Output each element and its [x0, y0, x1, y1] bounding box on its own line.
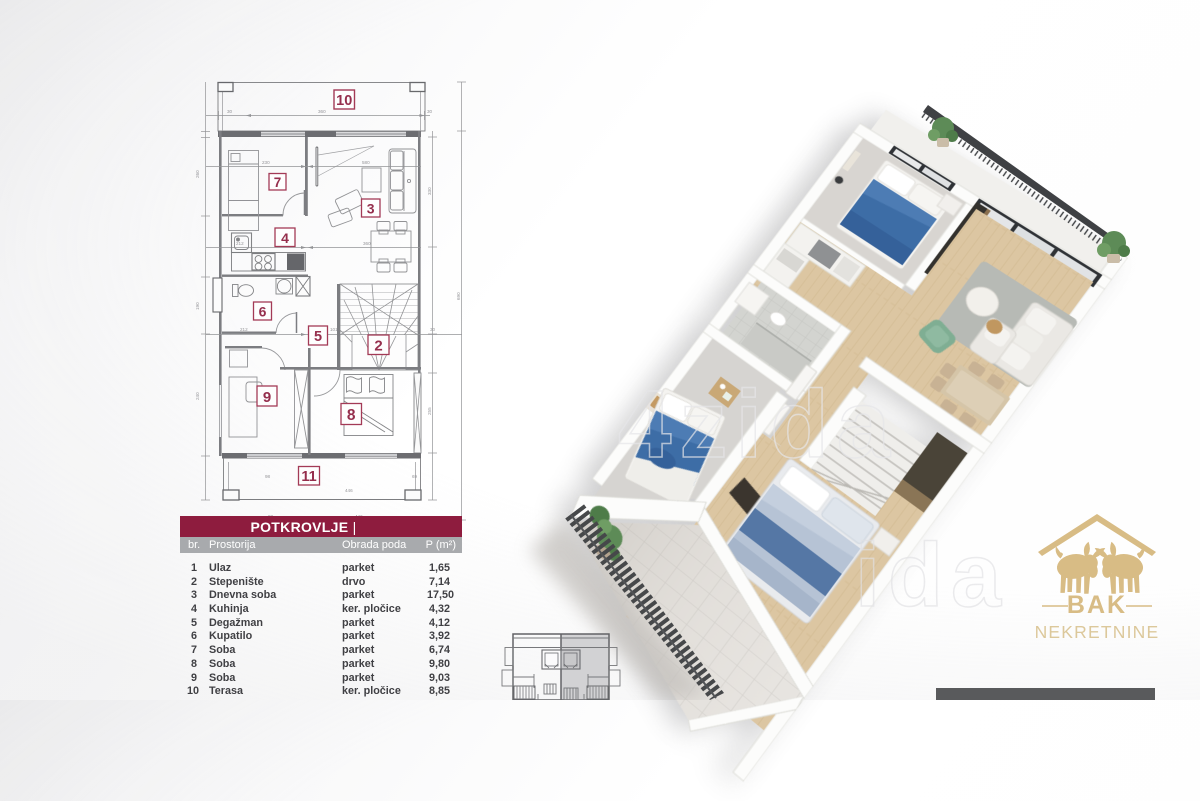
svg-text:9: 9 — [263, 389, 271, 406]
svg-text:260: 260 — [195, 170, 200, 178]
svg-text:190: 190 — [195, 302, 200, 310]
svg-text:212: 212 — [236, 241, 244, 246]
svg-text:255: 255 — [427, 407, 432, 415]
svg-text:BAK: BAK — [1067, 591, 1127, 619]
svg-text:360: 360 — [363, 241, 371, 246]
svg-text:240: 240 — [195, 392, 200, 400]
svg-text:230: 230 — [262, 160, 270, 165]
svg-text:2: 2 — [374, 338, 382, 355]
svg-text:580: 580 — [362, 160, 370, 165]
svg-text:NEKRETNINE: NEKRETNINE — [1035, 622, 1160, 642]
svg-text:4: 4 — [281, 230, 289, 246]
svg-text:30: 30 — [427, 109, 433, 114]
svg-text:6: 6 — [259, 303, 267, 319]
svg-text:3: 3 — [367, 200, 375, 216]
svg-text:330: 330 — [427, 187, 432, 195]
svg-text:446: 446 — [345, 488, 353, 493]
svg-text:30: 30 — [227, 109, 233, 114]
svg-text:98: 98 — [265, 474, 271, 479]
svg-text:11: 11 — [301, 469, 316, 485]
svg-text:360: 360 — [318, 109, 326, 114]
svg-text:69: 69 — [412, 474, 418, 479]
svg-text:8: 8 — [347, 407, 356, 424]
svg-text:7: 7 — [274, 175, 282, 190]
svg-text:212: 212 — [240, 327, 248, 332]
svg-text:10: 10 — [336, 93, 352, 109]
svg-text:690: 690 — [456, 292, 461, 300]
svg-text:101: 101 — [330, 327, 338, 332]
svg-text:5: 5 — [314, 329, 322, 345]
